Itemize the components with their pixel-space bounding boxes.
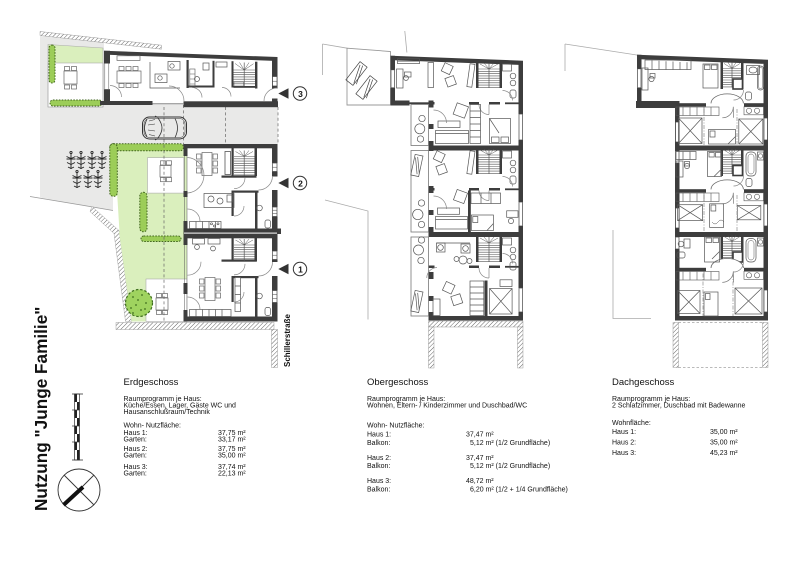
svg-text:45,23 m²: 45,23 m² <box>710 450 738 457</box>
svg-text:Wohnfläche:: Wohnfläche: <box>612 420 651 427</box>
svg-text:Obergeschoss: Obergeschoss <box>367 377 429 388</box>
svg-text:37,47 m²: 37,47 m² <box>466 455 494 462</box>
svg-text:Wohn- Nutzfläche:: Wohn- Nutzfläche: <box>367 423 425 430</box>
svg-text:5,12 m² (1/2 Grundfläche): 5,12 m² (1/2 Grundfläche) <box>470 463 550 470</box>
svg-text:35,00 m²: 35,00 m² <box>710 429 738 436</box>
svg-text:Wohn- Nutzfläche:: Wohn- Nutzfläche: <box>124 423 182 430</box>
svg-text:48,72 m²: 48,72 m² <box>466 478 494 485</box>
svg-text:Hausanschlußraum/Technik: Hausanschlußraum/Technik <box>124 409 211 416</box>
svg-text:37,47 m²: 37,47 m² <box>466 432 494 439</box>
svg-text:Wohnen, Eltern- / Kinderzimmer: Wohnen, Eltern- / Kinderzimmer und Dusch… <box>367 403 527 410</box>
svg-text:Haus 3:: Haus 3: <box>367 478 391 485</box>
svg-text:5,12 m² (1/2 Grundfläche): 5,12 m² (1/2 Grundfläche) <box>470 440 550 447</box>
svg-text:Garten:: Garten: <box>124 471 147 478</box>
svg-text:Balkon:: Balkon: <box>367 440 390 447</box>
svg-text:35,00 m²: 35,00 m² <box>710 440 738 447</box>
svg-text:Haus 2:: Haus 2: <box>367 455 391 462</box>
svg-text:22,13 m²: 22,13 m² <box>218 471 246 478</box>
svg-text:2: 2 <box>298 178 303 188</box>
svg-text:Garten:: Garten: <box>124 437 147 444</box>
svg-text:Dachgeschoss: Dachgeschoss <box>612 377 675 388</box>
svg-text:2 Schlafzimmer, Duschbad mit B: 2 Schlafzimmer, Duschbad mit Badewanne <box>612 403 746 410</box>
svg-text:Balkon:: Balkon: <box>367 487 390 494</box>
svg-text:Haus 1:: Haus 1: <box>612 429 636 436</box>
svg-text:Haus 3:: Haus 3: <box>612 450 636 457</box>
svg-text:Schillerstraße: Schillerstraße <box>283 314 292 367</box>
svg-text:Nutzung "Junge Familie": Nutzung "Junge Familie" <box>31 307 51 511</box>
svg-text:Haus 2:: Haus 2: <box>612 440 636 447</box>
svg-text:6,20 m² (1/2 + 1/4 Grundfläche: 6,20 m² (1/2 + 1/4 Grundfläche) <box>470 487 568 494</box>
svg-text:Erdgeschoss: Erdgeschoss <box>124 377 179 388</box>
svg-text:33,17 m²: 33,17 m² <box>218 437 246 444</box>
svg-text:3: 3 <box>298 89 303 99</box>
svg-text:Garten:: Garten: <box>124 453 147 460</box>
svg-text:Haus 1:: Haus 1: <box>367 432 391 439</box>
svg-text:1: 1 <box>298 264 303 274</box>
svg-text:Balkon:: Balkon: <box>367 463 390 470</box>
svg-text:35,00 m²: 35,00 m² <box>218 453 246 460</box>
